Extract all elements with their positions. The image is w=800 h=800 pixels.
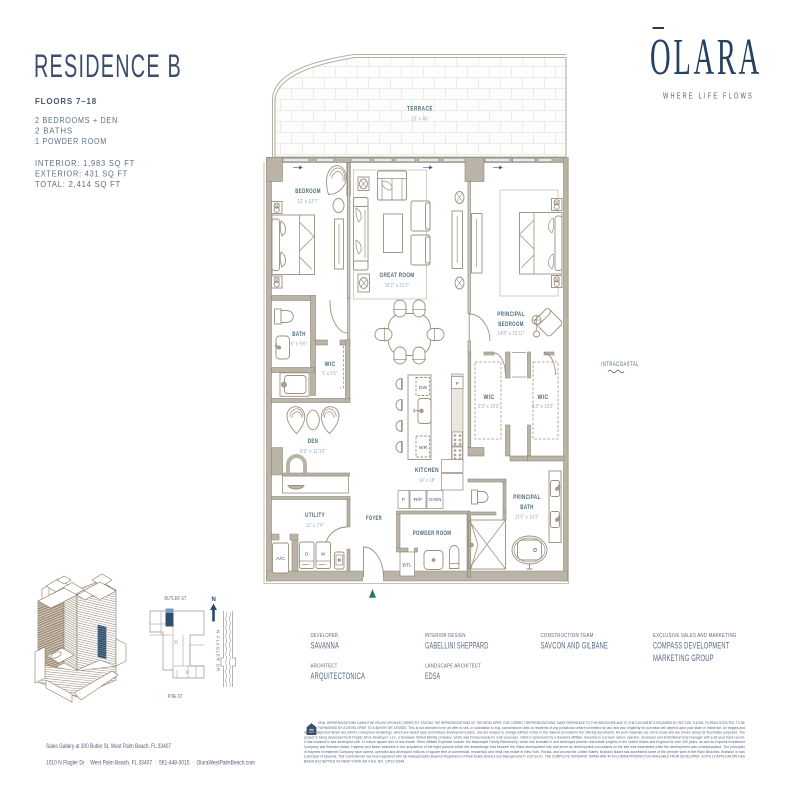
svg-text:PRINCIPAL: PRINCIPAL bbox=[497, 311, 525, 318]
svg-text:A/C: A/C bbox=[276, 556, 286, 561]
svg-text:WR: WR bbox=[419, 445, 428, 450]
svg-text:EXTERIOR: 431 SQ FT: EXTERIOR: 431 SQ FT bbox=[35, 169, 128, 179]
svg-text:P: P bbox=[402, 497, 405, 502]
svg-text:EXCLUSIVE SALES AND MARKETING: EXCLUSIVE SALES AND MARKETING bbox=[653, 633, 737, 639]
svg-text:FURNISHED BY A DEVELOPER TO A: FURNISHED BY A DEVELOPER TO A BUYER OR L… bbox=[318, 726, 745, 730]
svg-text:KITCHEN: KITCHEN bbox=[415, 467, 439, 474]
svg-text:INTRACOASTAL: INTRACOASTAL bbox=[601, 362, 639, 368]
svg-text:N FLAGLER DR: N FLAGLER DR bbox=[215, 630, 220, 672]
svg-text:1010 N Flagler Dr · West Palm: 1010 N Flagler Dr · West Palm Beach, FL … bbox=[46, 760, 255, 767]
svg-text:POWDER ROOM: POWDER ROOM bbox=[413, 530, 452, 537]
svg-text:It has invested in and develop: It has invested in and developed over 11… bbox=[304, 740, 745, 744]
svg-text:SAVCON AND GILBANE: SAVCON AND GILBANE bbox=[541, 641, 609, 651]
svg-text:5' x 5'1": 5' x 5'1" bbox=[322, 371, 338, 377]
svg-text:R/F: R/F bbox=[414, 497, 423, 502]
svg-text:5'3" x 10'3": 5'3" x 10'3" bbox=[532, 404, 554, 410]
svg-text:MARKETING GROUP: MARKETING GROUP bbox=[653, 653, 714, 663]
svg-text:FOYER: FOYER bbox=[366, 515, 382, 522]
svg-text:COMPASS DEVELOPMENT: COMPASS DEVELOPMENT bbox=[653, 641, 729, 651]
svg-text:P: P bbox=[456, 381, 459, 387]
svg-text:project is being developed by: project is being developed by N Flagler … bbox=[304, 735, 745, 739]
svg-text:GABELLINI SHEPPARD: GABELLINI SHEPPARD bbox=[425, 641, 488, 651]
svg-text:BTL: BTL bbox=[403, 563, 413, 568]
svg-text:RESIDENCE B: RESIDENCE B bbox=[34, 48, 182, 84]
svg-text:BUTLER ST: BUTLER ST bbox=[165, 596, 187, 602]
svg-text:PRINCIPAL: PRINCIPAL bbox=[513, 494, 541, 501]
svg-text:BATH: BATH bbox=[520, 504, 534, 511]
svg-text:LANDSCAPE ARCHITECT: LANDSCAPE ARCHITECT bbox=[425, 664, 481, 670]
svg-text:FLOORS 7–18: FLOORS 7–18 bbox=[35, 96, 97, 106]
svg-text:2 BEDROOMS + DEN: 2 BEDROOMS + DEN bbox=[35, 115, 118, 125]
svg-text:2 BATHS: 2 BATHS bbox=[35, 126, 73, 136]
svg-text:ORAL REPRESENTATIONS CANNOT BE: ORAL REPRESENTATIONS CANNOT BE RELIED UP… bbox=[318, 721, 745, 725]
svg-text:SAVANNA: SAVANNA bbox=[311, 641, 340, 651]
svg-text:OVEN: OVEN bbox=[429, 497, 442, 502]
svg-text:ARCHITECT: ARCHITECT bbox=[311, 664, 338, 670]
svg-text:18'2" x 21'2": 18'2" x 21'2" bbox=[385, 283, 410, 289]
svg-text:designs depicted herein are ar: designs depicted herein are artist's con… bbox=[304, 731, 745, 735]
svg-text:11'5" x 14'1": 11'5" x 14'1" bbox=[515, 515, 539, 521]
svg-text:1 POWDER ROOM: 1 POWDER ROOM bbox=[35, 136, 107, 146]
svg-text:OLARA: OLARA bbox=[650, 29, 762, 86]
svg-text:DW: DW bbox=[419, 385, 428, 390]
svg-text:Sales Gallery at 300 Butler St: Sales Gallery at 300 Butler St, West Pal… bbox=[46, 743, 171, 750]
svg-text:9'2" x 11'10": 9'2" x 11'10" bbox=[300, 449, 326, 455]
svg-text:GREAT ROOM: GREAT ROOM bbox=[380, 272, 415, 279]
svg-text:WHERE LIFE FLOWS: WHERE LIFE FLOWS bbox=[663, 92, 754, 101]
svg-text:PINE ST: PINE ST bbox=[168, 694, 183, 700]
svg-text:14'8" x 16'11": 14'8" x 16'11" bbox=[498, 331, 525, 337]
svg-text:a principal of Savanna. This C: a principal of Savanna. This Condominium… bbox=[304, 755, 745, 759]
svg-text:14' x 18': 14' x 18' bbox=[419, 478, 435, 484]
svg-text:DEVELOPER: DEVELOPER bbox=[311, 633, 339, 639]
svg-text:BATH: BATH bbox=[292, 331, 306, 338]
svg-text:Company and Brandon Baker. Hay: Company and Brandon Baker. Haymes and Ba… bbox=[304, 745, 745, 749]
svg-text:INTERIOR DESIGN: INTERIOR DESIGN bbox=[425, 633, 466, 639]
svg-text:10' x 45': 10' x 45' bbox=[411, 117, 429, 123]
svg-text:ARQUITECTONICA: ARQUITECTONICA bbox=[311, 671, 366, 681]
svg-text:WIC: WIC bbox=[325, 361, 336, 368]
svg-text:WIC: WIC bbox=[484, 394, 495, 401]
svg-text:N: N bbox=[212, 597, 216, 603]
svg-text:CONSTRUCTION TEAM: CONSTRUCTION TEAM bbox=[541, 633, 594, 639]
svg-text:W: W bbox=[321, 552, 326, 557]
svg-text:DEN: DEN bbox=[308, 438, 319, 445]
svg-text:BEEN ACCEPTED IN NEW YORK AS F: BEEN ACCEPTED IN NEW YORK AS FILE NO. CP… bbox=[304, 759, 406, 763]
svg-text:12' x 13'7": 12' x 13'7" bbox=[297, 199, 319, 205]
svg-text:WIC: WIC bbox=[538, 394, 549, 401]
svg-text:12' x 7'4": 12' x 7'4" bbox=[306, 523, 324, 529]
svg-text:EDSA: EDSA bbox=[425, 671, 441, 681]
svg-text:UTILITY: UTILITY bbox=[305, 512, 325, 519]
svg-text:of Haymes Investment Company h: of Haymes Investment Company have owned,… bbox=[304, 750, 745, 754]
svg-text:BEDROOM: BEDROOM bbox=[498, 321, 524, 328]
svg-text:TOTAL: 2,414 SQ FT: TOTAL: 2,414 SQ FT bbox=[35, 179, 121, 189]
svg-text:5'3" x 10'3": 5'3" x 10'3" bbox=[478, 404, 500, 410]
svg-text:TERRACE: TERRACE bbox=[407, 106, 433, 113]
svg-text:INTERIOR: 1,983 SQ FT: INTERIOR: 1,983 SQ FT bbox=[35, 158, 135, 168]
svg-text:BEDROOM: BEDROOM bbox=[295, 188, 321, 195]
svg-text:6' x 9'6": 6' x 9'6" bbox=[291, 342, 308, 348]
